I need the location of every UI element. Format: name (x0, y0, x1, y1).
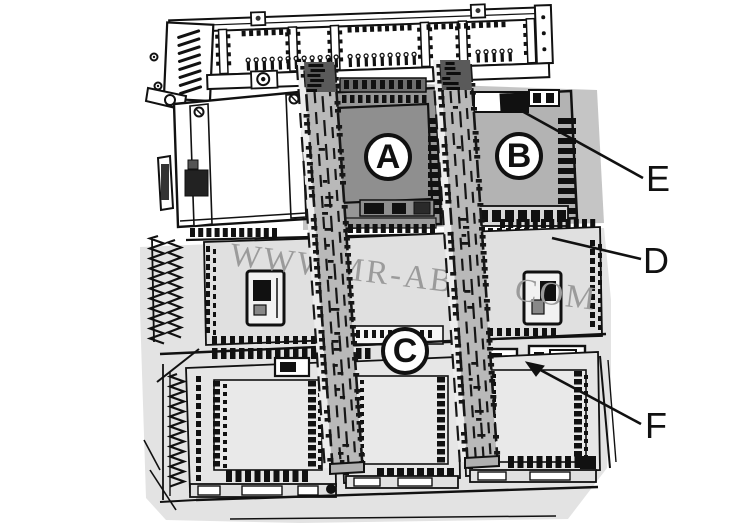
svg-text:B: B (507, 137, 532, 175)
svg-text:E: E (646, 158, 670, 199)
svg-text:F: F (645, 405, 667, 446)
svg-text:C: C (393, 332, 418, 370)
svg-text:A: A (376, 138, 401, 176)
svg-text:D: D (643, 240, 669, 281)
